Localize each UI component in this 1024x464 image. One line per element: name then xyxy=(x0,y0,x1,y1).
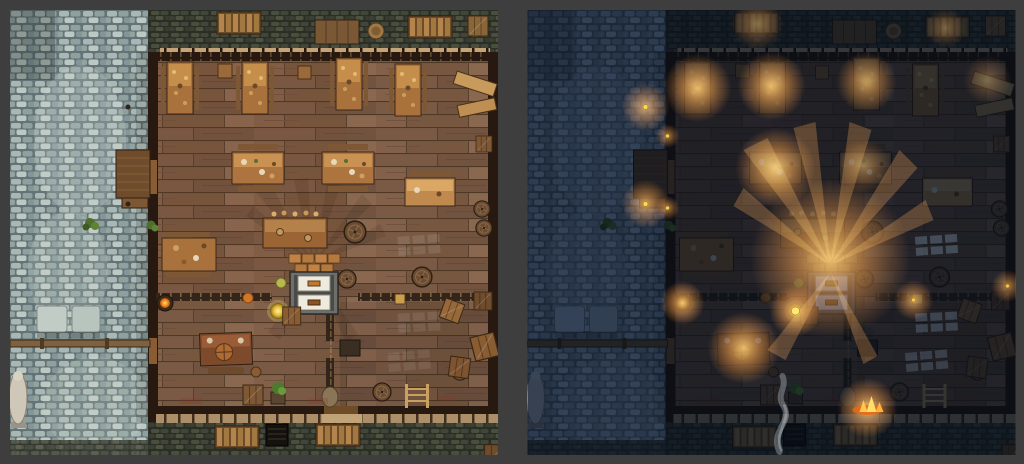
tavern-map-day xyxy=(10,10,498,455)
night-map-image xyxy=(527,10,1016,455)
night-map-panel[interactable] xyxy=(527,10,1016,455)
day-map-panel[interactable] xyxy=(10,10,498,455)
night-overlay xyxy=(528,10,1017,455)
day-map-image xyxy=(10,10,498,455)
